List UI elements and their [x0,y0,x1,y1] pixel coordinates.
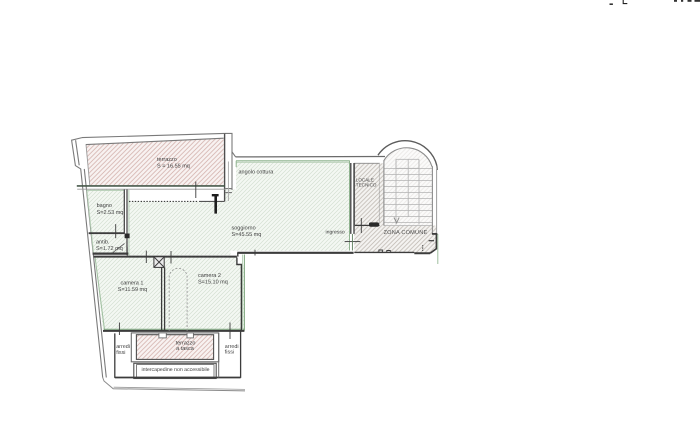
svg-text:camera 1: camera 1 [121,280,144,286]
svg-text:a tasca: a tasca [176,346,195,352]
svg-text:bagno: bagno [97,203,112,209]
svg-text:S=1.72 mq: S=1.72 mq [96,246,123,252]
svg-text:intercapedine non accessibile: intercapedine non accessibile [141,367,209,373]
svg-text:S=15.10 mq: S=15.10 mq [198,279,228,285]
svg-text:S = 16.55 mq: S = 16.55 mq [157,164,190,170]
svg-text:S=2.53 mq: S=2.53 mq [97,210,124,216]
svg-text:camera 2: camera 2 [198,273,221,279]
svg-text:terrazzo: terrazzo [157,157,177,163]
svg-text:antib.: antib. [96,240,110,246]
svg-text:S=11.59 mq: S=11.59 mq [118,287,147,293]
svg-text:fissi: fissi [225,350,234,356]
svg-text:ingresso: ingresso [326,230,345,236]
svg-text:TECNICO: TECNICO [356,183,377,188]
svg-text:fissi: fissi [116,350,125,356]
svg-text:angolo cottura: angolo cottura [239,169,275,175]
svg-text:soggiorno: soggiorno [232,226,256,232]
svg-text:S=45.55 mq: S=45.55 mq [232,232,262,238]
svg-text:ZONA COMUNE: ZONA COMUNE [384,230,428,236]
